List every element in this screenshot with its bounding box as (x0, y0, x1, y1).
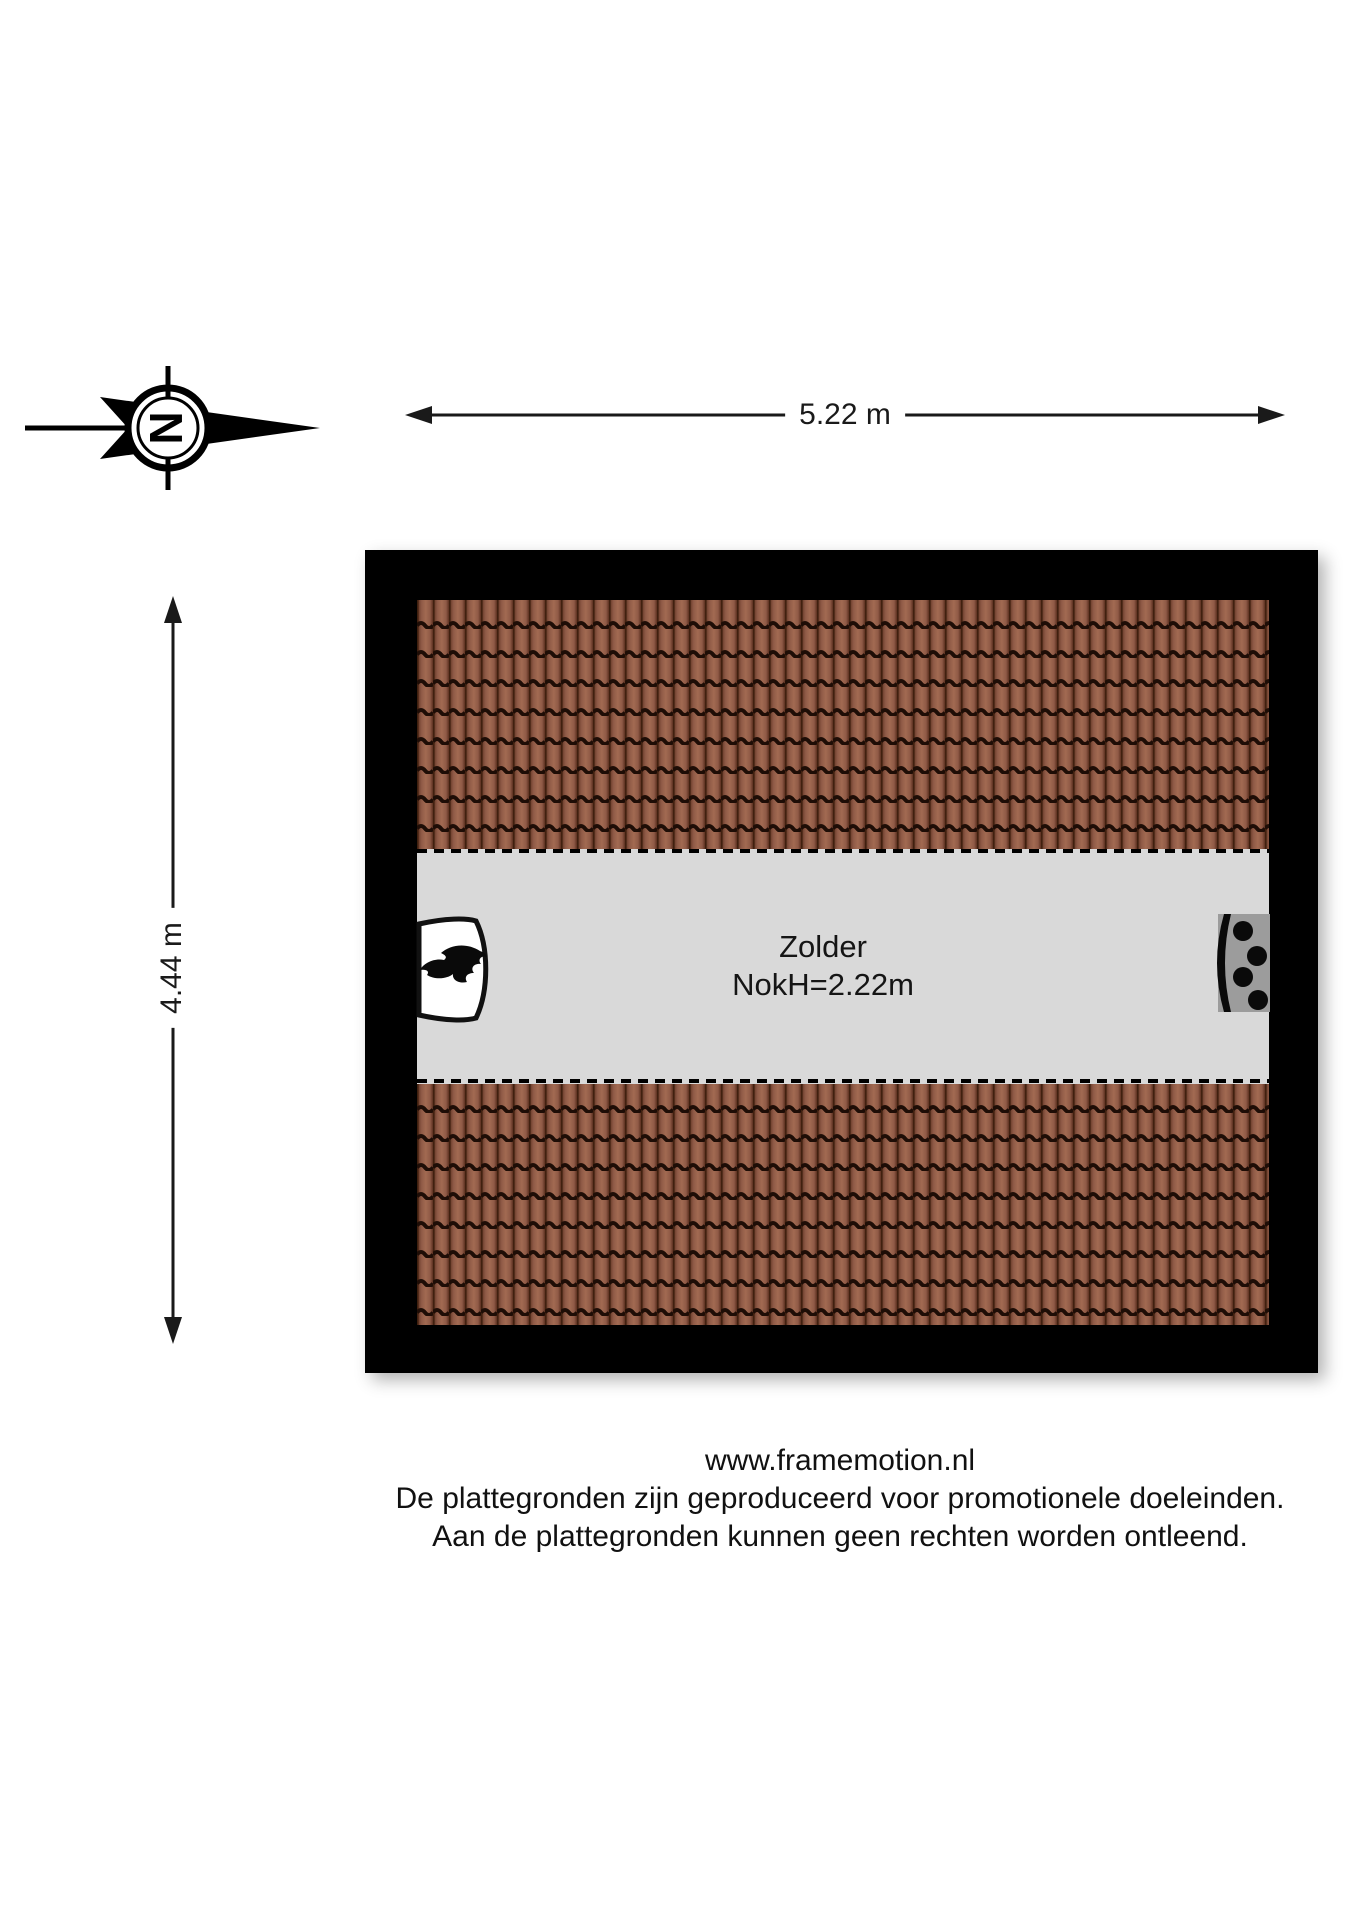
fireplace-flame-icon (414, 915, 502, 1025)
boiler-icon (1206, 913, 1270, 1013)
compass-letter: N (140, 411, 192, 444)
arrow-right-icon (1258, 406, 1285, 424)
attic-room: Zolder NokH=2.22m (417, 600, 1269, 1325)
floor-plan: Zolder NokH=2.22m (365, 550, 1318, 1373)
room-name: Zolder (732, 928, 914, 966)
arrow-left-icon (405, 406, 432, 424)
width-dimension-label: 5.22 m (785, 398, 905, 432)
room-label: Zolder NokH=2.22m (732, 928, 914, 1004)
roof-edge-dashed-line-top (417, 849, 1269, 853)
room-ridge-height: NokH=2.22m (732, 966, 914, 1004)
arrow-down-icon (164, 1317, 182, 1344)
footer-disclaimer-line2: Aan de plattegronden kunnen geen rechten… (290, 1518, 1358, 1556)
footer-disclaimer-line1: De plattegronden zijn geproduceerd voor … (290, 1480, 1358, 1518)
floor-plan-page: N 5.22 m 4.44 m Zolder NokH=2.22m (0, 0, 1358, 1920)
north-arrow-icon: N (20, 358, 330, 498)
roof-tiles-bottom (417, 1084, 1269, 1325)
roof-tiles-top (417, 600, 1269, 849)
roof-edge-dashed-line-bottom (417, 1079, 1269, 1083)
footer-website: www.framemotion.nl (290, 1442, 1358, 1480)
arrow-up-icon (164, 596, 182, 623)
height-dimension-label: 4.44 m (155, 908, 189, 1028)
footer-disclaimer: www.framemotion.nl De plattegronden zijn… (290, 1442, 1358, 1556)
